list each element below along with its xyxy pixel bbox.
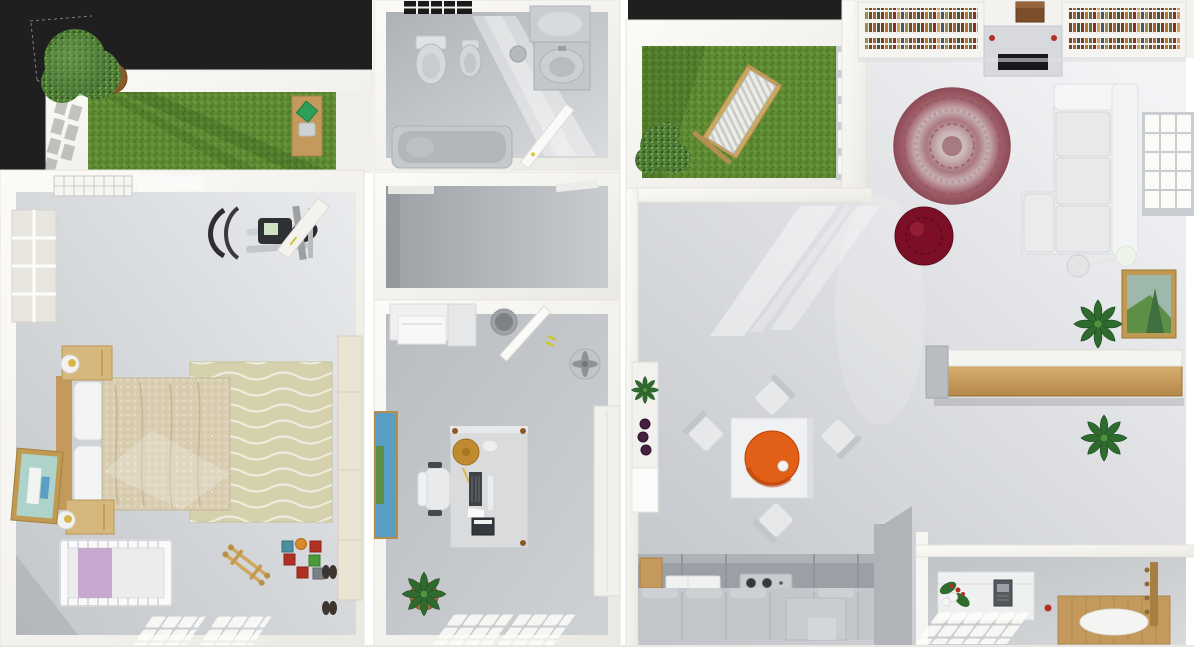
bar-top (930, 350, 1182, 366)
book-row (1068, 38, 1180, 49)
desk-leg (520, 428, 526, 434)
shelf-plant (631, 376, 659, 404)
hallway-left-shade (386, 186, 400, 288)
speaker-left (989, 35, 995, 41)
book-row (864, 23, 978, 34)
shelf-shadow (858, 58, 1186, 62)
bidet (459, 40, 481, 77)
book-row (864, 8, 978, 19)
printer-cabinet (390, 304, 476, 346)
palm-plant-upper (1074, 300, 1122, 348)
toilet (416, 36, 446, 84)
wine-bottle (641, 445, 651, 455)
sofa-seat-cushion (1056, 206, 1110, 252)
chair-armrest (428, 510, 442, 516)
dining-shelf (631, 362, 659, 512)
room-entryway (915, 545, 1200, 645)
room-hallway (374, 172, 620, 300)
room-garden-terrace (626, 20, 858, 190)
red-pouf (895, 207, 953, 265)
entry-top-wall (916, 545, 1200, 557)
office-plant (402, 572, 446, 616)
terrace-patio (336, 92, 372, 172)
ball-lamp-glow (68, 359, 76, 367)
baby-crib (60, 540, 172, 606)
ball-lamp-glow (64, 515, 72, 523)
standing-fan (570, 349, 600, 379)
partition-wall (874, 506, 912, 645)
palm-plant-lower (1081, 415, 1127, 461)
bar-shadow (934, 398, 1184, 406)
sofa-chaise-cushion (1024, 194, 1054, 252)
washbasin-cabinet (534, 42, 590, 90)
bathtub (392, 126, 512, 168)
base-cabinets (638, 588, 906, 640)
book-row (864, 38, 978, 49)
red-object (1045, 605, 1052, 612)
office-wardrobe (594, 406, 620, 596)
door-lintel-left (388, 186, 434, 194)
mug (482, 440, 498, 452)
island-block (808, 618, 836, 640)
bathroom-window (404, 1, 472, 14)
office-waste-bin-inner (495, 313, 513, 331)
chair-armrest (428, 462, 442, 468)
chair-backrest (418, 472, 427, 506)
right-margin (1194, 0, 1200, 657)
bedroom-wardrobe (338, 336, 362, 600)
terrace-chair (299, 123, 315, 136)
desk-leg (452, 428, 458, 434)
table-edge-shade (807, 418, 813, 498)
counter-top-edge (638, 554, 906, 563)
pillow (74, 446, 104, 504)
monitor-edge (487, 475, 494, 511)
nightstand-bottom (57, 500, 114, 534)
oval-rug (1080, 609, 1148, 635)
room-bedroom (0, 170, 364, 647)
wine-bottle (640, 419, 650, 429)
cutting-board (640, 558, 662, 588)
desk-tray-center (462, 448, 470, 456)
stereo-box-top (1016, 2, 1044, 8)
intercom-screen (997, 584, 1009, 592)
bathroom-waste-bin (510, 46, 526, 62)
speaker-right (1051, 35, 1057, 41)
bar-wood-face (930, 366, 1182, 396)
bar-support (926, 346, 948, 398)
living-painting (1122, 270, 1176, 338)
hallway-floor (386, 186, 608, 288)
office-desk (450, 426, 528, 548)
office-wall-art (375, 412, 397, 538)
floorplan-render (0, 0, 1200, 657)
wine-bottle (638, 432, 648, 442)
mirror-reflection (538, 12, 582, 36)
terrace-desk (292, 96, 322, 156)
sofa-back-right (1112, 84, 1138, 256)
shelf-cabinet (632, 468, 658, 512)
tree-foliage-shading (46, 36, 106, 96)
bedroom-window (12, 210, 56, 322)
book-row (1068, 23, 1180, 34)
dining-top-wall (626, 188, 872, 202)
sofa-seat-cushion (1056, 158, 1110, 204)
cabinet-caps (642, 588, 854, 598)
bottom-wall-line (0, 645, 1200, 647)
floorplan-stage (0, 0, 1200, 657)
typewriter-paper (474, 520, 492, 524)
oriental-rug (894, 88, 1010, 204)
leaning-painting (11, 448, 63, 524)
book-row (1068, 8, 1180, 19)
intercom (994, 580, 1012, 606)
sofa-seat-cushion (1056, 112, 1110, 156)
living-window (1142, 112, 1194, 216)
room-bathroom (374, 0, 620, 170)
room-home-office (374, 300, 620, 647)
pillow (74, 382, 104, 440)
nightstand-top (61, 346, 112, 380)
pendant-bulb (778, 461, 788, 471)
desk-leg (520, 540, 526, 546)
kitchen (638, 554, 906, 640)
